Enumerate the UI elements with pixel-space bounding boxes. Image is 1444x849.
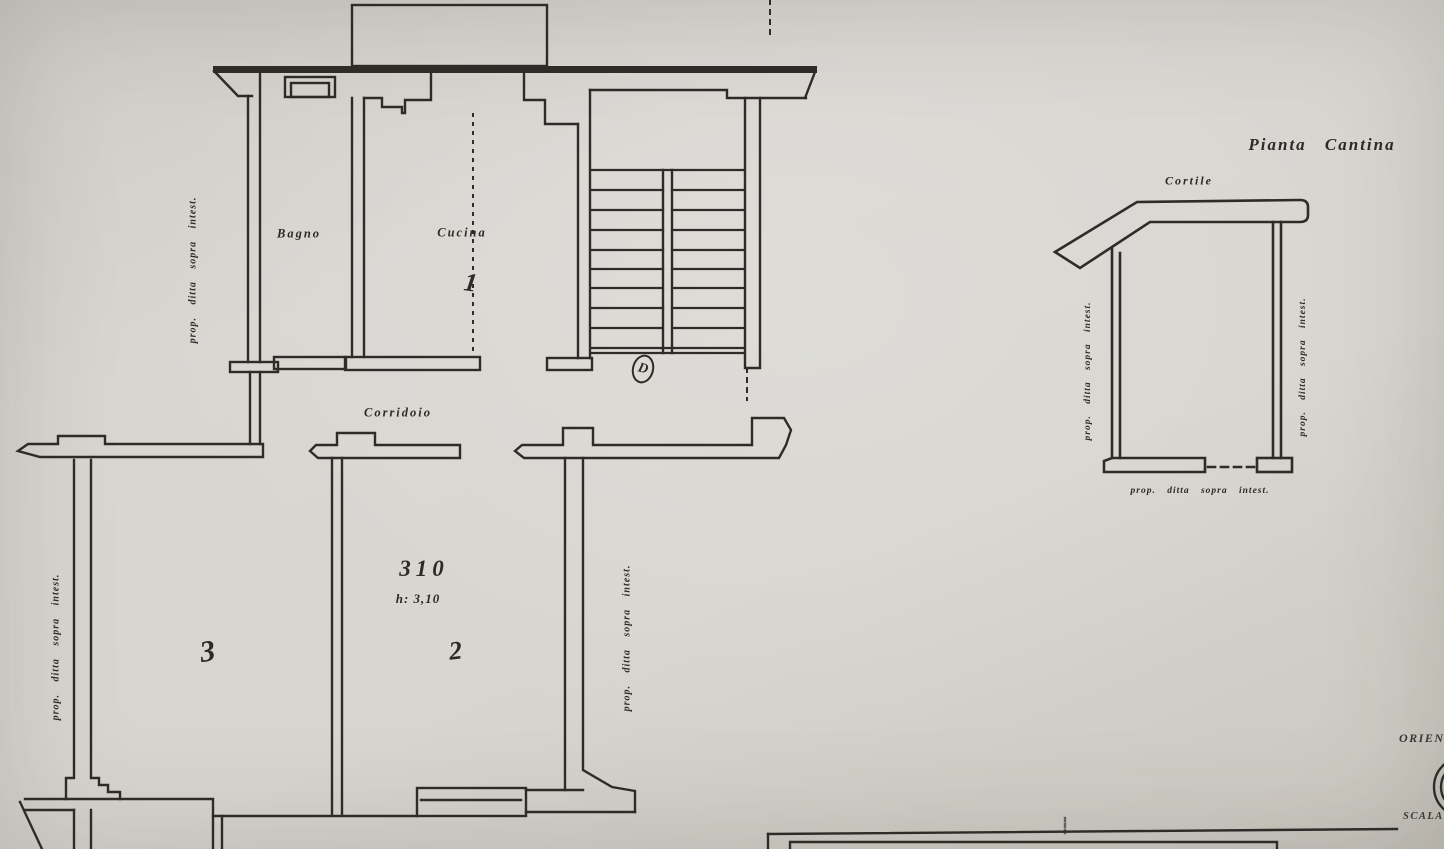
cantina-top-wall (1055, 200, 1308, 268)
cucina-label: Cucina (437, 226, 487, 241)
stair-treads (592, 170, 743, 353)
cucina-bottom-wall (345, 357, 480, 370)
boundary-label-top-left: prop. ditta sopra intest. (188, 197, 199, 344)
room2-number: 2 (447, 635, 464, 666)
top-wall-right-end (805, 72, 815, 98)
cortile-label: Cortile (1165, 174, 1213, 189)
top-pillar (285, 77, 335, 97)
rooms-divider-wall (332, 458, 342, 814)
top-pillar-inner (291, 83, 329, 97)
bagno-label: Bagno (277, 227, 321, 242)
cantina-boundary-bottom: prop. ditta sopra intest. (1131, 486, 1270, 496)
bottom-wall-stubs (74, 810, 222, 849)
corner-block-lines (768, 757, 1444, 849)
corridor-band-middle (310, 433, 460, 458)
room3-left-wall (66, 460, 120, 799)
cucina-top-steps (364, 74, 431, 113)
bottom-wall-left (25, 799, 417, 816)
plan-linework (0, 0, 1444, 849)
bottom-wall-right (526, 790, 635, 812)
floor-plan-sheet: Bagno Cucina 1 Corridoio 310 h: 3,10 2 3… (0, 0, 1444, 849)
scale-label: SCALA (1403, 811, 1444, 822)
stair-right-wall (745, 98, 760, 368)
bagno-bottom-wall (274, 357, 346, 369)
stair-left-wall (578, 90, 590, 358)
top-wall-left-end (214, 71, 252, 96)
cantina-boundary-left: prop. ditta sopra intest. (1083, 302, 1093, 441)
stair-stringer (663, 170, 672, 353)
stair-top-inner (590, 90, 806, 98)
bagno-left-wall (248, 73, 260, 362)
room2-area-label: 310 (399, 556, 449, 582)
corridor-band-right (515, 418, 791, 458)
title-block-edges (768, 834, 1277, 849)
corridor-band-left (18, 436, 263, 457)
bagno-left-wall-flange (230, 362, 278, 372)
compass-outer-circle (1434, 757, 1444, 817)
stair-left-flange (547, 358, 592, 370)
title-block-top-line (768, 829, 1397, 834)
corridoio-label: Corridoio (364, 406, 432, 421)
cantina-bottom-wall (1104, 458, 1205, 472)
terrace-outline (352, 5, 547, 66)
main-plan (18, 0, 817, 849)
bottom-protrusion (417, 788, 526, 816)
cantina-right-wall (1273, 222, 1281, 458)
bagno-right-wall (352, 98, 364, 357)
orientation-label: ORIEN (1399, 731, 1444, 746)
cantina-boundary-right: prop. ditta sopra intest. (1298, 298, 1308, 437)
boundary-label-bottom-left: prop. ditta sopra intest. (51, 574, 62, 721)
cantina-left-wall (1112, 248, 1120, 458)
cantina-title: Pianta Cantina (1248, 135, 1395, 155)
top-wall (213, 66, 817, 73)
boundary-label-right: prop. ditta sopra intest. (622, 565, 633, 712)
outer-wall-lower (250, 372, 260, 444)
cucina-right-steps (524, 74, 578, 124)
cantina-bottom-right-wall (1257, 458, 1292, 472)
room2-height-label: h: 3,10 (396, 591, 441, 607)
